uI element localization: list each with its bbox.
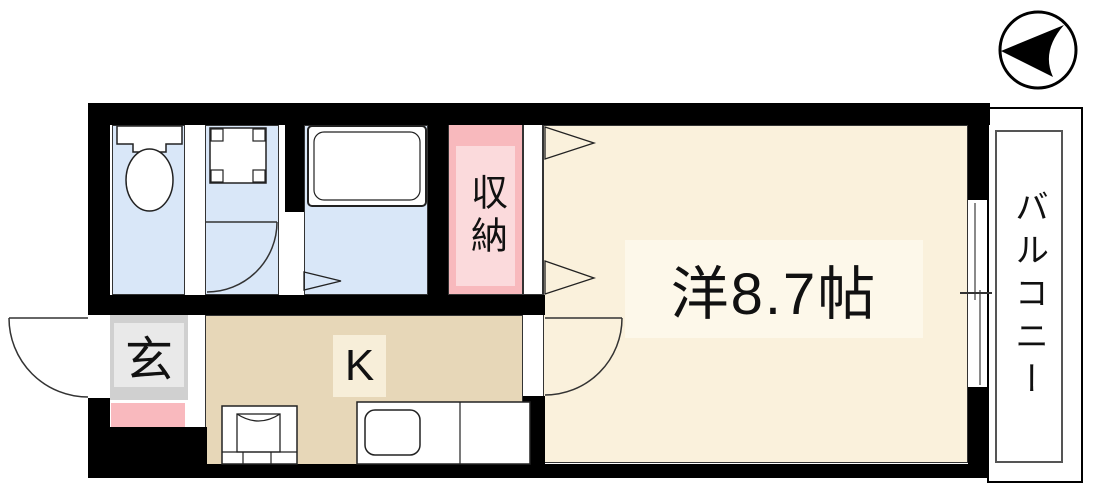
floor-plan: 収納 洋8.7帖 K 玄 バルコニー: [0, 0, 1093, 494]
folding-door-icon: [304, 272, 341, 290]
sliding-window-icon: [960, 203, 992, 385]
toilet-icon: [117, 126, 182, 211]
entrance-door-icon: [9, 318, 88, 397]
bathtub-icon: [308, 126, 426, 206]
washing-machine-icon: [222, 406, 297, 464]
closet-folding-doors-icon: [545, 127, 594, 294]
kitchen-sink-counter-icon: [357, 402, 530, 464]
hinged-door-icon: [206, 222, 277, 292]
fixture-layer: [0, 0, 1093, 494]
north-arrow-icon: [1000, 12, 1076, 88]
vanity-sink-icon: [210, 128, 266, 183]
kitchen-door-icon: [545, 318, 622, 395]
